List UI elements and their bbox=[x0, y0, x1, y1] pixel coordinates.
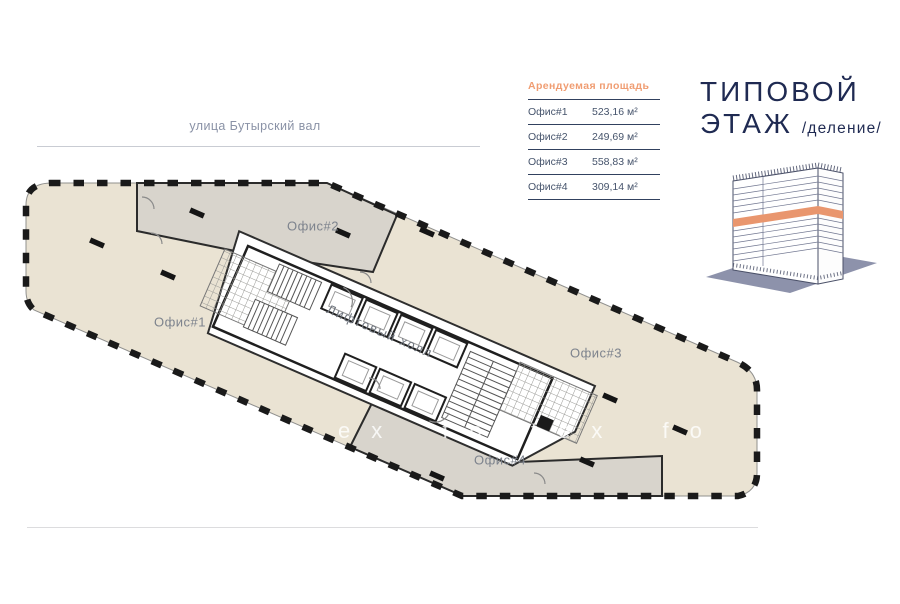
page: ex fortex fo улица Бутырский вал Арендуе… bbox=[0, 0, 900, 604]
title-suffix: /деление/ bbox=[802, 120, 882, 137]
row-value: 523,16 м² bbox=[592, 106, 638, 118]
table-row: Офис#2 249,69 м² bbox=[528, 125, 660, 150]
office-label-2: Офис#2 bbox=[287, 219, 339, 234]
row-value: 309,14 м² bbox=[592, 181, 638, 193]
street-label: улица Бутырский вал bbox=[30, 119, 480, 133]
table-row: Офис#3 558,83 м² bbox=[528, 150, 660, 175]
row-value: 249,69 м² bbox=[592, 131, 638, 143]
office-label-3: Офис#3 bbox=[570, 346, 622, 361]
page-title: ТИПОВОЙ ЭТАЖ/деление/ bbox=[700, 76, 882, 140]
office-label-4: Офис#4 bbox=[474, 453, 526, 468]
table-row: Офис#4 309,14 м² bbox=[528, 175, 660, 200]
watermark-text: ex fortex fo bbox=[338, 418, 723, 444]
office-label-1: Офис#1 bbox=[154, 315, 206, 330]
row-value: 558,83 м² bbox=[592, 156, 638, 168]
building-illustration bbox=[706, 165, 877, 293]
building-face-right bbox=[818, 168, 843, 284]
title-line-2-text: ЭТАЖ bbox=[700, 108, 793, 139]
title-line-1: ТИПОВОЙ bbox=[700, 76, 882, 108]
street-divider bbox=[37, 146, 480, 147]
row-label: Офис#1 bbox=[528, 106, 592, 118]
title-line-2: ЭТАЖ/деление/ bbox=[700, 108, 882, 140]
row-label: Офис#2 bbox=[528, 131, 592, 143]
bottom-divider bbox=[27, 527, 758, 528]
area-table: Арендуемая площадь Офис#1 523,16 м² Офис… bbox=[528, 80, 660, 200]
row-label: Офис#4 bbox=[528, 181, 592, 193]
area-table-header: Арендуемая площадь bbox=[528, 80, 660, 100]
row-label: Офис#3 bbox=[528, 156, 592, 168]
table-row: Офис#1 523,16 м² bbox=[528, 100, 660, 125]
